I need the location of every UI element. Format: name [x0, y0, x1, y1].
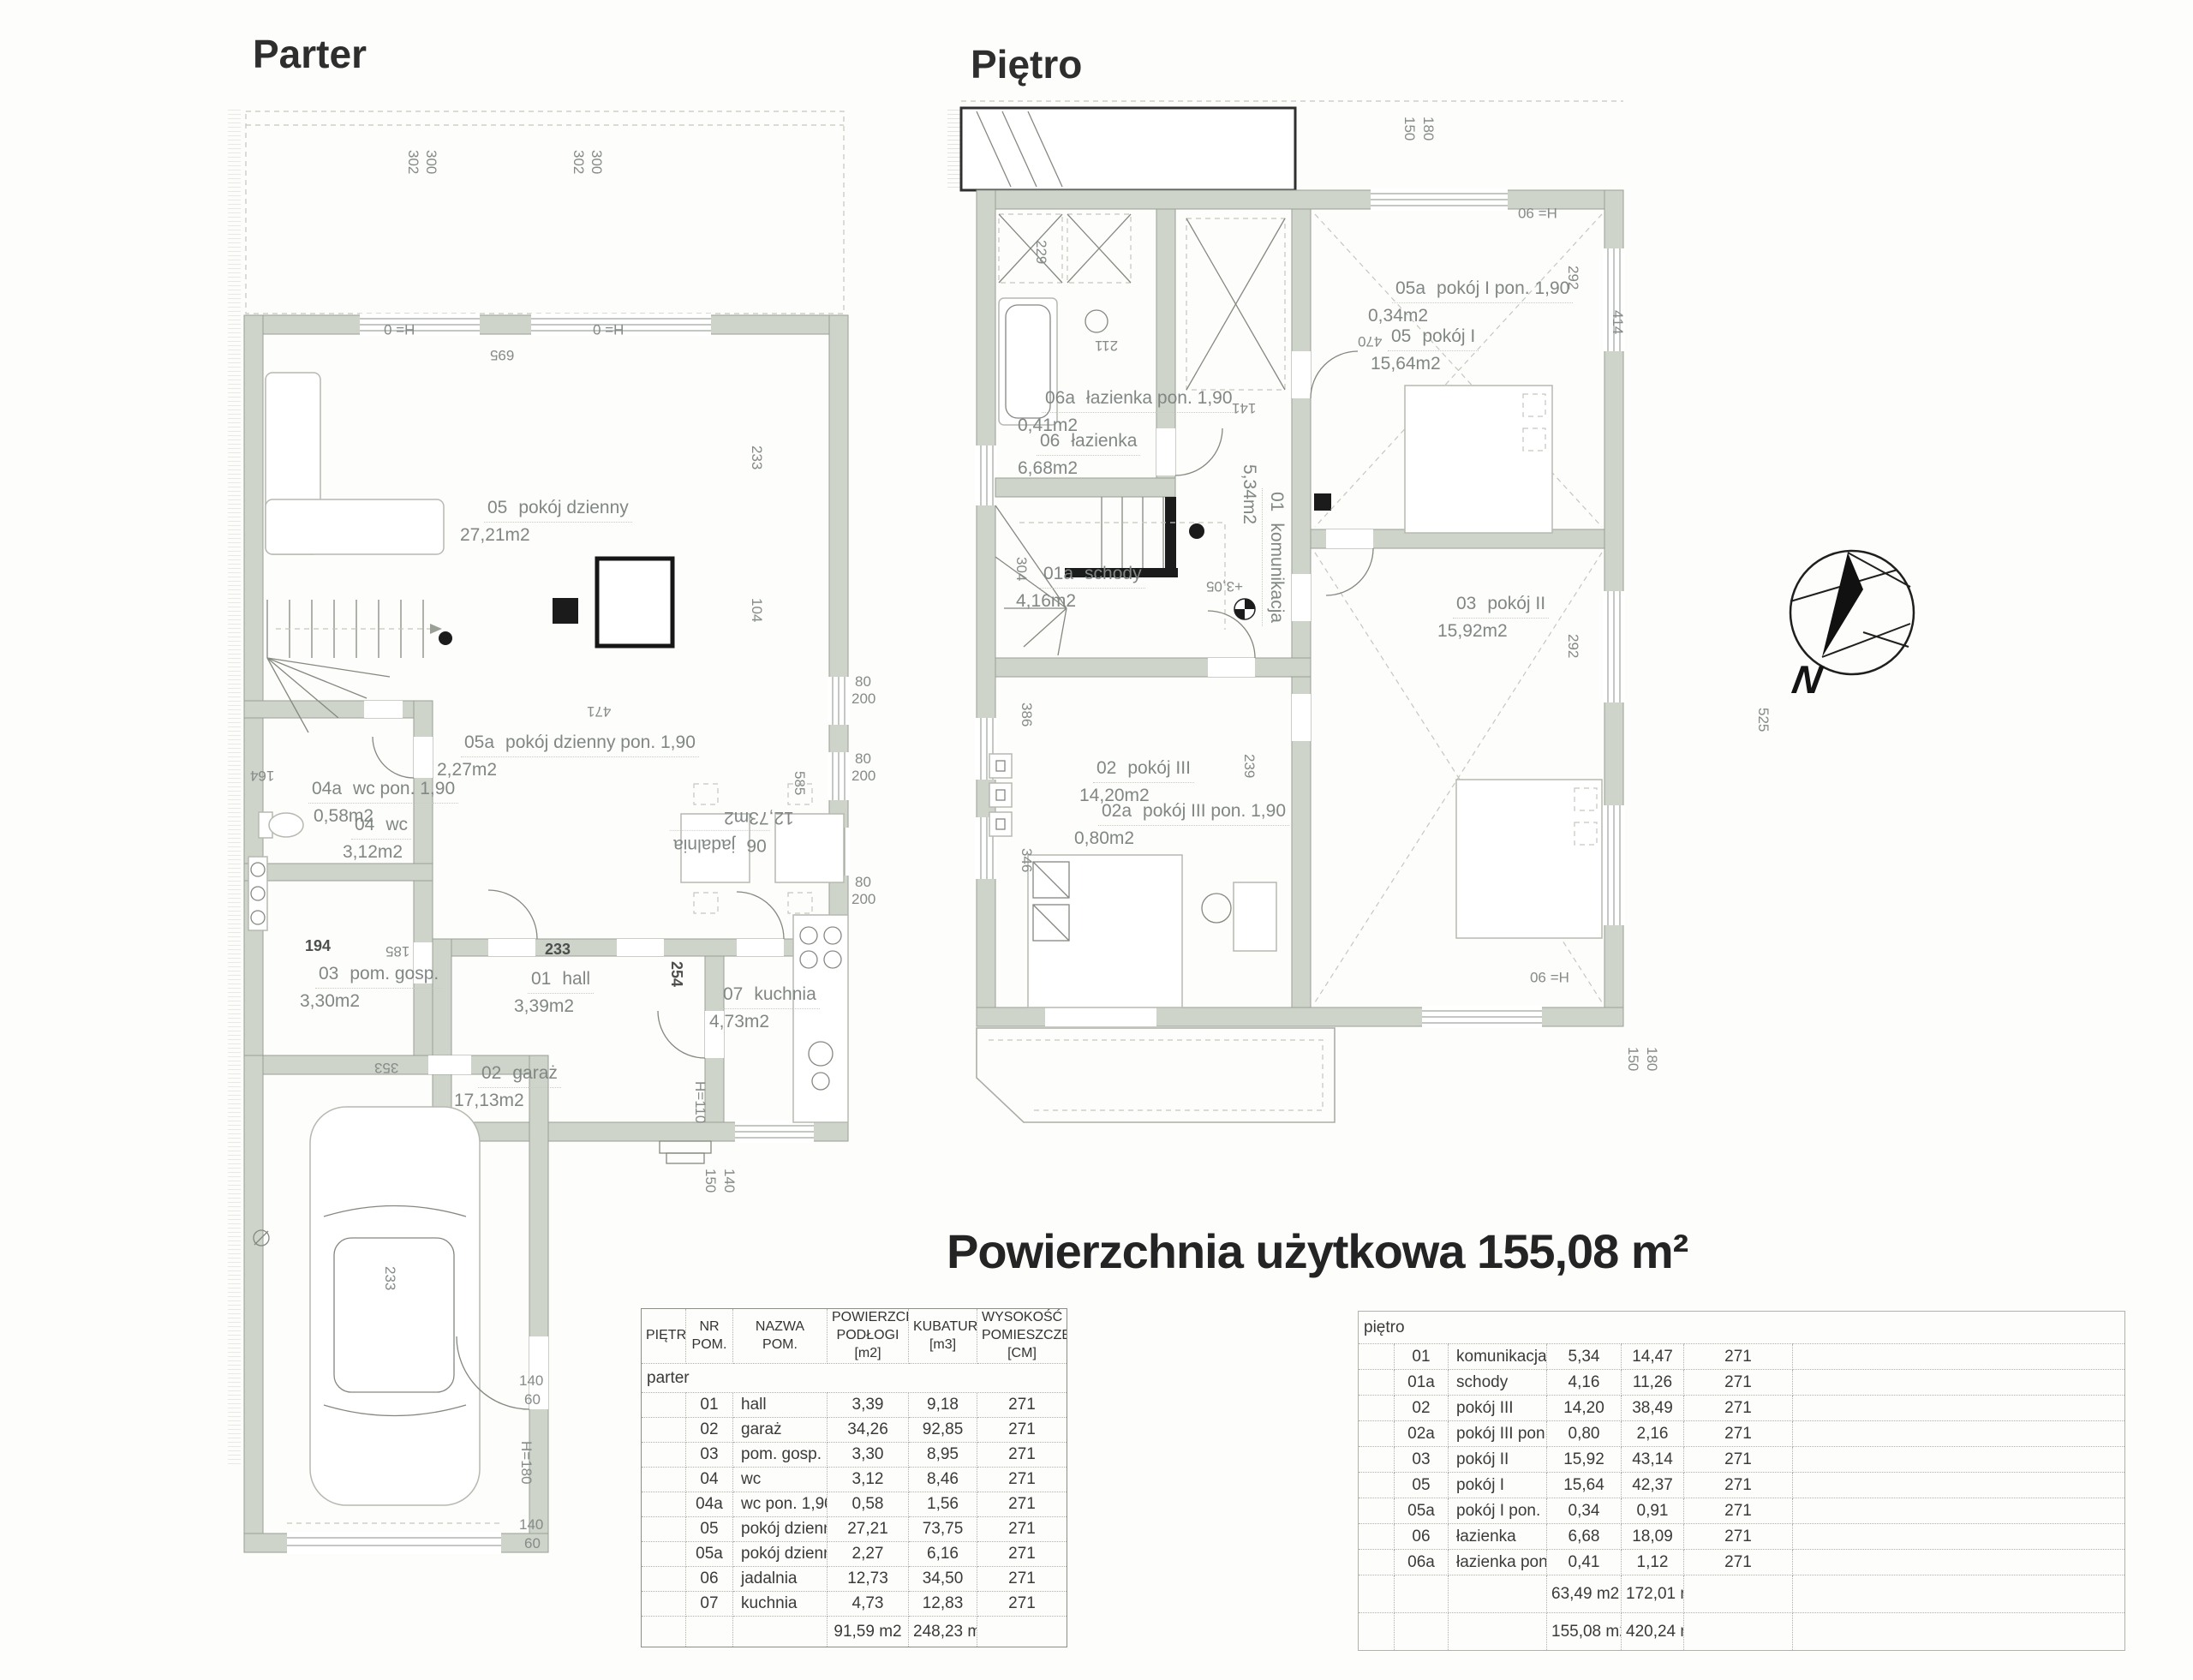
area-table-cell: 34,50 — [909, 1567, 977, 1592]
subtotal-row: 63,49 m2 172,01 m3 — [1359, 1575, 2125, 1613]
room-label-pokoj2: 03pokój II 15,92m2 — [1436, 591, 1549, 645]
dimension-label: 304 — [1013, 557, 1030, 581]
area-table-cell: 04 — [686, 1468, 733, 1492]
area-table-cell: pom. gosp. — [733, 1443, 828, 1468]
floorplan-sheet: Parter Piętro Powierzchnia użytkowa 155,… — [0, 0, 2193, 1680]
dimension-label: 200 — [852, 768, 875, 785]
area-table-row: 03pom. gosp.3,308,95271 — [642, 1443, 1067, 1468]
empty-cell — [1359, 1370, 1395, 1396]
dimension-label: 292 — [1564, 266, 1581, 290]
empty-cell — [1793, 1396, 2125, 1421]
dimension-label: 150 — [702, 1169, 719, 1193]
area-table-row: 05pokój I15,6442,37271 — [1359, 1473, 2125, 1498]
dimension-label: 180 — [1419, 117, 1437, 140]
empty-cell — [1684, 1613, 1793, 1651]
empty-cell — [1793, 1370, 2125, 1396]
room-label-hall: 01hall 3,39m2 — [512, 966, 594, 1020]
col-header-wysokosc: WYSOKOŚĆ POMIESZCZENIA [CM] — [977, 1309, 1067, 1364]
empty-cell — [1684, 1575, 1793, 1613]
dimension-label: 386 — [1018, 702, 1035, 726]
empty-cell — [642, 1468, 686, 1492]
section-row: parter — [642, 1364, 1067, 1393]
dimension-label: 185 — [385, 942, 409, 960]
area-table-cell: 05a — [686, 1542, 733, 1567]
area-table-row: 05pokój dzienny27,2173,75271 — [642, 1517, 1067, 1542]
area-table-cell: 01 — [686, 1393, 733, 1418]
area-table-cell: 12,83 — [909, 1592, 977, 1617]
empty-cell — [733, 1617, 828, 1647]
area-table-cell: 0,91 — [1622, 1498, 1684, 1524]
col-header-nr-pom: NR POM. — [686, 1309, 733, 1364]
area-table-cell: 2,27 — [828, 1542, 909, 1567]
area-table-cell: 3,39 — [828, 1393, 909, 1418]
dimension-label: 164 — [250, 767, 274, 784]
dimension-label: 229 — [1032, 240, 1049, 264]
area-table-cell: 271 — [977, 1542, 1067, 1567]
area-table-row: 01komunikacja5,3414,47271 — [1359, 1344, 2125, 1370]
area-table-row: 06jadalnia12,7334,50271 — [642, 1567, 1067, 1592]
dimension-label: 104 — [748, 598, 765, 622]
area-table-cell: 34,26 — [828, 1418, 909, 1443]
grand-total-m2: 155,08 m2 — [1547, 1613, 1622, 1651]
dimension-label: 200 — [852, 891, 875, 908]
area-table-cell: 8,95 — [909, 1443, 977, 1468]
area-table-row: 04awc pon. 1,900,581,56271 — [642, 1492, 1067, 1517]
area-table-cell: pokój III — [1449, 1396, 1547, 1421]
area-table-cell: 14,20 — [1547, 1396, 1622, 1421]
dimension-label: 353 — [374, 1059, 398, 1076]
area-table-cell: jadalnia — [733, 1567, 828, 1592]
area-table-cell: 1,56 — [909, 1492, 977, 1517]
area-table-cell: 271 — [977, 1517, 1067, 1542]
dimension-label: 140 — [720, 1169, 738, 1193]
area-table-cell: 0,58 — [828, 1492, 909, 1517]
usable-area-title: Powierzchnia użytkowa 155,08 m² — [947, 1223, 1688, 1279]
dimension-label: 80 — [855, 750, 871, 768]
dimension-label: 200 — [852, 691, 875, 708]
area-table-cell: 6,16 — [909, 1542, 977, 1567]
area-table-cell: pokój I — [1449, 1473, 1547, 1498]
area-table-cell: 43,14 — [1622, 1447, 1684, 1473]
area-table-cell: garaż — [733, 1418, 828, 1443]
area-table-cell: 2,16 — [1622, 1421, 1684, 1447]
area-table-cell: 05 — [1395, 1473, 1449, 1498]
area-table-cell: 06 — [1395, 1524, 1449, 1550]
area-table-cell: 271 — [977, 1592, 1067, 1617]
room-label-wc: 04wc 3,12m2 — [341, 812, 411, 866]
col-header-kubatura: KUBATURA [m3] — [909, 1309, 977, 1364]
area-table-cell: łazienka — [1449, 1524, 1547, 1550]
empty-cell — [1359, 1421, 1395, 1447]
dimension-label: 300 — [422, 150, 439, 174]
dimension-label: 150 — [1624, 1047, 1641, 1071]
area-table-cell: 271 — [1684, 1524, 1793, 1550]
empty-cell — [1793, 1498, 2125, 1524]
dimension-label: 233 — [748, 445, 765, 469]
empty-cell — [1359, 1447, 1395, 1473]
dimension-label: 233 — [381, 1266, 398, 1290]
area-table-row: 02garaż34,2692,85271 — [642, 1418, 1067, 1443]
area-table-cell: 4,16 — [1547, 1370, 1622, 1396]
area-table-cell: 02 — [1395, 1396, 1449, 1421]
area-table-cell: 01a — [1395, 1370, 1449, 1396]
area-table-row: 01aschody4,1611,26271 — [1359, 1370, 2125, 1396]
area-table-row: 06łazienka6,6818,09271 — [1359, 1524, 2125, 1550]
area-table-cell: 07 — [686, 1592, 733, 1617]
area-table-cell: wc pon. 1,90 — [733, 1492, 828, 1517]
dimension-label: 140 — [519, 1516, 543, 1534]
room-label-komunikacja: 01komunikacja 5,34m2 — [1235, 463, 1289, 626]
total-row: 91,59 m2 248,23 m3 — [642, 1617, 1067, 1647]
area-table-cell: 271 — [1684, 1473, 1793, 1498]
dimension-label: 470 — [1358, 332, 1382, 350]
area-table-cell: 38,49 — [1622, 1396, 1684, 1421]
empty-cell — [1359, 1613, 1395, 1651]
pietro-title: Piętro — [971, 41, 1082, 87]
dimension-label: 254 — [667, 961, 685, 987]
dimension-label: H= 0 — [593, 320, 624, 338]
dimension-label: 239 — [1240, 754, 1258, 778]
area-table-cell: 271 — [977, 1418, 1067, 1443]
area-table-cell: 271 — [977, 1393, 1067, 1418]
area-table-cell: 15,92 — [1547, 1447, 1622, 1473]
area-table-row: 01hall3,399,18271 — [642, 1393, 1067, 1418]
dimension-label: 141 — [1232, 399, 1256, 416]
dimension-label: 194 — [305, 937, 331, 955]
dimension-label: 60 — [524, 1535, 541, 1552]
area-table-cell: 8,46 — [909, 1468, 977, 1492]
empty-cell — [1793, 1575, 2125, 1613]
subtotal-m3: 172,01 m3 — [1622, 1575, 1684, 1613]
empty-cell — [642, 1492, 686, 1517]
area-table-cell: schody — [1449, 1370, 1547, 1396]
parter-area-table: PIĘTRO NR POM. NAZWA POM. POWIERZCHNIA P… — [641, 1308, 1067, 1647]
area-table-cell: 271 — [1684, 1370, 1793, 1396]
dimension-label: H= 90 — [1518, 204, 1557, 221]
room-label-garaz: 02garaż 17,13m2 — [452, 1061, 561, 1115]
empty-cell — [1449, 1613, 1547, 1651]
total-m3: 248,23 m3 — [909, 1617, 977, 1647]
dimension-label: 150 — [1401, 117, 1418, 140]
table-header-row: PIĘTRO NR POM. NAZWA POM. POWIERZCHNIA P… — [642, 1309, 1067, 1364]
area-table-cell: pokój II — [1449, 1447, 1547, 1473]
area-table-row: 03pokój II15,9243,14271 — [1359, 1447, 2125, 1473]
section-row: piętro — [1359, 1312, 2125, 1344]
area-table-row: 05apokój I pon. 1,900,340,91271 — [1359, 1498, 2125, 1524]
empty-cell — [642, 1542, 686, 1567]
dimension-label: 233 — [545, 941, 571, 959]
area-table-cell: pokój dzienny — [733, 1517, 828, 1542]
area-table-row: 02pokój III14,2038,49271 — [1359, 1396, 2125, 1421]
area-table-cell: 3,30 — [828, 1443, 909, 1468]
empty-cell — [1359, 1344, 1395, 1370]
empty-cell — [642, 1443, 686, 1468]
dimension-label: 346 — [1018, 848, 1035, 872]
area-table-cell: pokój III pon. 1,90 — [1449, 1421, 1547, 1447]
area-table-cell: 271 — [977, 1492, 1067, 1517]
dimension-label: 211 — [1095, 337, 1118, 354]
empty-cell — [1395, 1575, 1449, 1613]
area-table-cell: 04a — [686, 1492, 733, 1517]
area-table-cell: 0,41 — [1547, 1550, 1622, 1575]
room-label-pokoj-dzienny: 05pokój dzienny 27,21m2 — [458, 495, 632, 549]
area-table-row: 06ałazienka pon. 1,900,411,12271 — [1359, 1550, 2125, 1575]
dimension-label: 302 — [404, 150, 421, 174]
area-table-cell: 06a — [1395, 1550, 1449, 1575]
grand-total-m3: 420,24 m3 — [1622, 1613, 1684, 1651]
empty-cell — [642, 1418, 686, 1443]
room-label-pokoj1: 05pokój I 15,64m2 — [1369, 324, 1479, 378]
area-table-cell: 05 — [686, 1517, 733, 1542]
room-label-pokoj3-pon: 02apokój III pon. 1,90 0,80m2 — [1073, 798, 1289, 852]
area-table-cell: 03 — [1395, 1447, 1449, 1473]
empty-cell — [1359, 1575, 1395, 1613]
area-table-cell: 271 — [977, 1468, 1067, 1492]
area-table-cell: 271 — [1684, 1396, 1793, 1421]
area-table-cell: 03 — [686, 1443, 733, 1468]
empty-cell — [1359, 1550, 1395, 1575]
empty-cell — [1359, 1498, 1395, 1524]
dimension-label: 414 — [1609, 310, 1626, 334]
area-table-cell: pokój dzienny pon. 1,90 — [733, 1542, 828, 1567]
grand-total-row: 155,08 m2 420,24 m3 — [1359, 1613, 2125, 1651]
dimension-label: 60 — [524, 1391, 541, 1408]
area-table-cell: 271 — [1684, 1498, 1793, 1524]
area-table-row: 07kuchnia4,7312,83271 — [642, 1592, 1067, 1617]
area-table-cell: 271 — [1684, 1447, 1793, 1473]
empty-cell — [1793, 1447, 2125, 1473]
area-table-cell: kuchnia — [733, 1592, 828, 1617]
room-label-jadalnia: 06jadalnia 12,73m2 — [670, 804, 796, 858]
area-table-cell: 01 — [1395, 1344, 1449, 1370]
empty-cell — [642, 1567, 686, 1592]
pietro-area-table: piętro 01komunikacja5,3414,4727101aschod… — [1358, 1311, 2125, 1651]
total-m2: 91,59 m2 — [828, 1617, 909, 1647]
area-table-cell: 3,12 — [828, 1468, 909, 1492]
section-label-parter: parter — [642, 1364, 1067, 1393]
empty-cell — [642, 1393, 686, 1418]
dimension-label: H=180 — [517, 1441, 535, 1485]
room-label-schody: 01aschody 4,16m2 — [1014, 561, 1145, 615]
empty-cell — [1793, 1524, 2125, 1550]
room-label-lazienka: 06łazienka 6,68m2 — [1016, 428, 1140, 482]
dimension-label: 180 — [1643, 1047, 1660, 1071]
parter-title: Parter — [253, 31, 367, 77]
empty-cell — [1359, 1524, 1395, 1550]
empty-cell — [1793, 1421, 2125, 1447]
empty-cell — [1395, 1613, 1449, 1651]
empty-cell — [1793, 1613, 2125, 1651]
area-table-cell: 271 — [1684, 1421, 1793, 1447]
dimension-label: 695 — [490, 346, 514, 363]
dimension-label: 292 — [1564, 634, 1581, 658]
area-table-cell: 92,85 — [909, 1418, 977, 1443]
col-header-pietro: PIĘTRO — [642, 1309, 686, 1364]
empty-cell — [1449, 1575, 1547, 1613]
empty-cell — [642, 1617, 686, 1647]
area-table-cell: 1,12 — [1622, 1550, 1684, 1575]
area-table-cell: 6,68 — [1547, 1524, 1622, 1550]
empty-cell — [686, 1617, 733, 1647]
col-header-nazwa-pom: NAZWA POM. — [733, 1309, 828, 1364]
empty-cell — [977, 1617, 1067, 1647]
area-table-cell: 0,34 — [1547, 1498, 1622, 1524]
area-table-cell: 12,73 — [828, 1567, 909, 1592]
area-table-cell: 271 — [1684, 1344, 1793, 1370]
area-table-cell: 271 — [977, 1567, 1067, 1592]
dimension-label: 80 — [855, 673, 871, 691]
area-table-cell: 11,26 — [1622, 1370, 1684, 1396]
area-table-cell: 27,21 — [828, 1517, 909, 1542]
empty-cell — [1793, 1344, 2125, 1370]
area-table-cell: pokój I pon. 1,90 — [1449, 1498, 1547, 1524]
area-table-cell: łazienka pon. 1,90 — [1449, 1550, 1547, 1575]
area-table-cell: 42,37 — [1622, 1473, 1684, 1498]
empty-cell — [1359, 1473, 1395, 1498]
dimension-label: 300 — [588, 150, 605, 174]
room-label-pokoj1-pon: 05apokój I pon. 1,90 0,34m2 — [1366, 276, 1573, 330]
area-table-cell: komunikacja — [1449, 1344, 1547, 1370]
area-table-cell: 15,64 — [1547, 1473, 1622, 1498]
dimension-label: H=110 — [691, 1081, 708, 1123]
room-label-pom-gosp: 03pom. gosp. 3,30m2 — [298, 961, 442, 1015]
subtotal-m2: 63,49 m2 — [1547, 1575, 1622, 1613]
empty-cell — [1793, 1473, 2125, 1498]
room-label-pokoj-dzienny-pon: 05apokój dzienny pon. 1,90 2,27m2 — [435, 730, 699, 784]
area-table-cell: 18,09 — [1622, 1524, 1684, 1550]
section-label-pietro: piętro — [1359, 1312, 2125, 1344]
col-header-powierzchnia: POWIERZCHNIA PODŁOGI [m2] — [828, 1309, 909, 1364]
room-label-kuchnia: 07kuchnia 4,73m2 — [708, 982, 820, 1036]
empty-cell — [642, 1517, 686, 1542]
area-table-cell: hall — [733, 1393, 828, 1418]
area-table-cell: 73,75 — [909, 1517, 977, 1542]
area-table-cell: wc — [733, 1468, 828, 1492]
dimension-label: 585 — [791, 771, 808, 795]
area-table-cell: 06 — [686, 1567, 733, 1592]
dimension-label: 80 — [855, 874, 871, 891]
area-table-row: 02apokój III pon. 1,900,802,16271 — [1359, 1421, 2125, 1447]
area-table-cell: 05a — [1395, 1498, 1449, 1524]
area-table-cell: 271 — [1684, 1550, 1793, 1575]
dimension-label: +3,05 — [1206, 577, 1243, 595]
area-table-cell: 14,47 — [1622, 1344, 1684, 1370]
area-table-cell: 9,18 — [909, 1393, 977, 1418]
area-table-cell: 02a — [1395, 1421, 1449, 1447]
area-table-cell: 02 — [686, 1418, 733, 1443]
dimension-label: H= 0 — [384, 320, 415, 338]
dimension-label: 525 — [1754, 708, 1772, 732]
empty-cell — [1793, 1550, 2125, 1575]
dimension-label: 302 — [570, 150, 587, 174]
area-table-cell: 271 — [977, 1443, 1067, 1468]
dimension-label: 471 — [587, 702, 611, 720]
area-table-cell: 5,34 — [1547, 1344, 1622, 1370]
dimension-label: 140 — [519, 1372, 543, 1390]
dimension-label: H= 90 — [1530, 968, 1569, 985]
area-table-row: 05apokój dzienny pon. 1,902,276,16271 — [642, 1542, 1067, 1567]
empty-cell — [642, 1592, 686, 1617]
empty-cell — [1359, 1396, 1395, 1421]
area-table-row: 04wc3,128,46271 — [642, 1468, 1067, 1492]
area-table-cell: 4,73 — [828, 1592, 909, 1617]
area-table-cell: 0,80 — [1547, 1421, 1622, 1447]
